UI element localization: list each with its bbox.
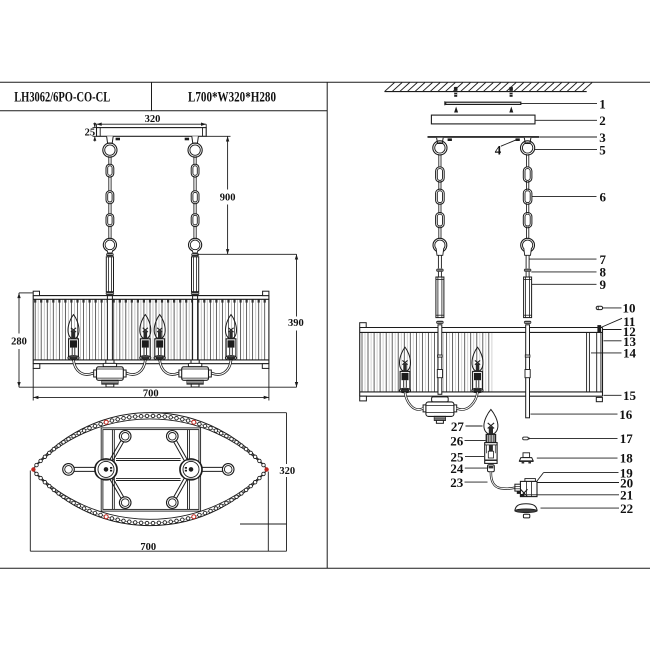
svg-text:17: 17 xyxy=(620,431,634,446)
svg-text:22: 22 xyxy=(620,501,633,516)
svg-text:L700*W320*H280: L700*W320*H280 xyxy=(188,89,276,105)
svg-text:24: 24 xyxy=(450,461,464,476)
svg-text:16: 16 xyxy=(619,407,633,422)
svg-text:320: 320 xyxy=(145,114,161,125)
svg-text:900: 900 xyxy=(220,192,236,203)
svg-text:LH3062/6PO-CO-CL: LH3062/6PO-CO-CL xyxy=(14,89,110,105)
svg-text:18: 18 xyxy=(620,450,634,465)
svg-text:320: 320 xyxy=(279,466,295,477)
svg-text:2: 2 xyxy=(599,113,606,128)
svg-text:9: 9 xyxy=(600,277,607,292)
svg-text:15: 15 xyxy=(623,388,637,403)
svg-text:23: 23 xyxy=(450,475,464,490)
svg-text:280: 280 xyxy=(11,337,27,348)
svg-text:14: 14 xyxy=(623,346,637,361)
svg-text:1: 1 xyxy=(599,97,606,112)
svg-text:27: 27 xyxy=(451,419,465,434)
svg-text:700: 700 xyxy=(140,542,156,553)
svg-text:6: 6 xyxy=(600,189,607,204)
svg-text:4: 4 xyxy=(495,143,502,158)
svg-text:26: 26 xyxy=(450,433,464,448)
svg-text:390: 390 xyxy=(288,318,304,329)
svg-text:700: 700 xyxy=(143,388,159,399)
svg-text:5: 5 xyxy=(599,143,606,158)
